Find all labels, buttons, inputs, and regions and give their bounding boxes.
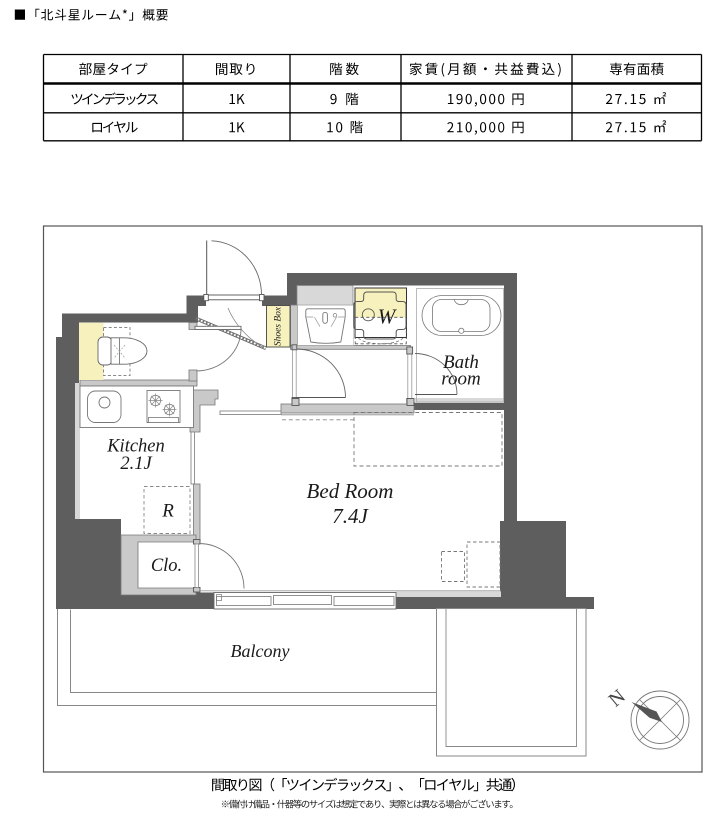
svg-text:Clo.: Clo. <box>151 556 182 576</box>
svg-text:7.4J: 7.4J <box>332 504 369 528</box>
svg-text:2.1J: 2.1J <box>120 454 152 474</box>
svg-text:R: R <box>161 501 174 522</box>
svg-text:Bed Room: Bed Room <box>307 479 394 503</box>
svg-text:room: room <box>441 369 480 390</box>
svg-text:Shoes Box: Shoes Box <box>274 306 284 346</box>
svg-text:Balcony: Balcony <box>231 641 290 661</box>
svg-text:N: N <box>605 685 630 711</box>
svg-text:W: W <box>378 305 398 329</box>
